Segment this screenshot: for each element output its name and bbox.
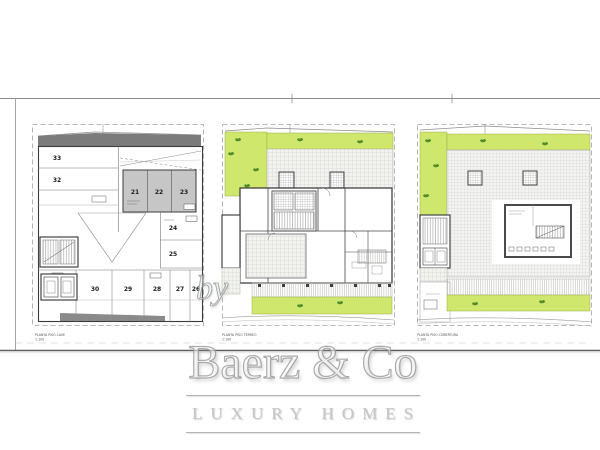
stair-elevator-core xyxy=(420,215,450,268)
parking-space-25: 25 xyxy=(169,251,177,258)
blueprint-sheet: 33 32 21 22 23 24 25 31 xyxy=(0,0,600,450)
elevator-shafts xyxy=(41,274,77,300)
parking-space-28: 28 xyxy=(153,286,161,293)
plan1-caption: PLANTA PISO CAVE xyxy=(35,333,65,337)
tiled-patio xyxy=(246,234,306,278)
parking-space-30: 30 xyxy=(91,286,99,293)
parking-space-23: 23 xyxy=(180,189,188,196)
plan-roof: PLANTA PISO COBERTURA 1:100 xyxy=(417,124,592,342)
skylight xyxy=(523,171,537,185)
terrace-bottom xyxy=(447,279,590,295)
parking-space-21: 21 xyxy=(131,189,139,196)
parking-space-27: 27 xyxy=(176,286,184,293)
parking-space-29: 29 xyxy=(124,286,132,293)
garden-strip-top xyxy=(447,134,590,150)
garden-strip-bottom xyxy=(447,295,590,311)
plan2-caption: PLANTA PISO TÉRREO xyxy=(222,332,257,337)
parking-space-33: 33 xyxy=(53,155,61,162)
plan3-scale: 1:100 xyxy=(417,338,426,342)
garden-area-left xyxy=(420,132,447,215)
parking-space-24: 24 xyxy=(169,225,177,232)
terrace-bottom xyxy=(252,283,392,297)
parking-space-22: 22 xyxy=(155,189,163,196)
floorplan-drawing: 33 32 21 22 23 24 25 31 xyxy=(0,0,600,450)
stair-core xyxy=(40,237,78,267)
garden-strip-top xyxy=(267,133,393,149)
plan-basement: 33 32 21 22 23 24 25 31 xyxy=(33,124,204,342)
skylight xyxy=(468,171,482,185)
ramp-roof-strip xyxy=(38,133,201,146)
plan1-scale: 1:100 xyxy=(35,338,44,342)
parking-space-26: 26 xyxy=(192,286,200,293)
plan3-caption: PLANTA PISO COBERTURA xyxy=(417,333,459,337)
parking-space-32: 32 xyxy=(53,177,61,184)
plan2-scale: 1:100 xyxy=(222,338,231,342)
garden-strip-bottom xyxy=(252,297,392,314)
plan-ground: PLANTA PISO TÉRREO 1:100 xyxy=(222,124,395,342)
